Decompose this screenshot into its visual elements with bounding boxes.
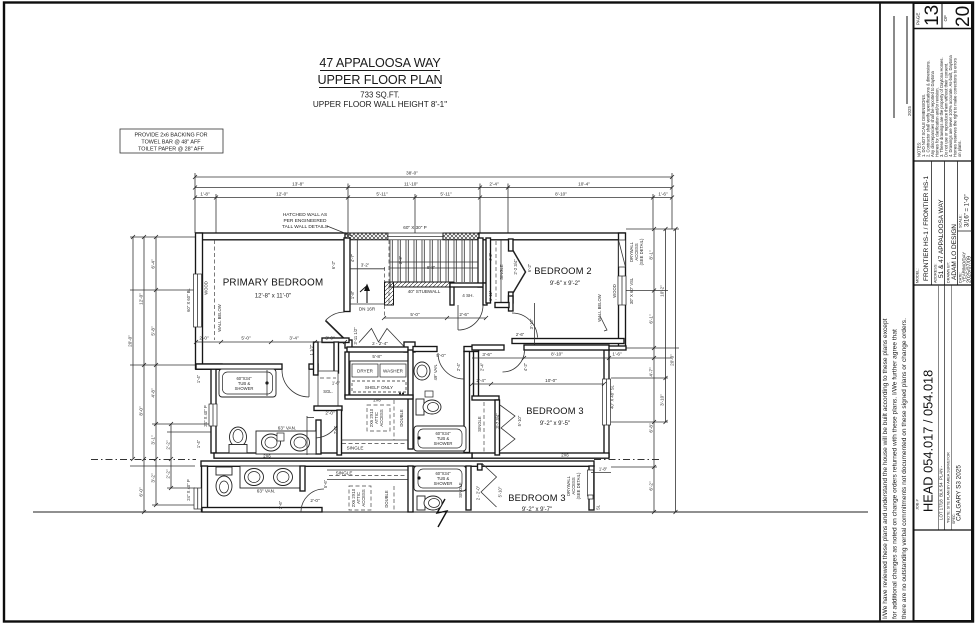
svg-text:8'-10": 8'-10" [551, 352, 563, 357]
svg-text:DRAWN BY:: DRAWN BY: [947, 262, 951, 283]
svg-text:1 1/2": 1 1/2" [309, 344, 314, 355]
svg-text:49" VAN.: 49" VAN. [433, 364, 438, 381]
svg-text:BEDROOM 3: BEDROOM 3 [526, 406, 584, 416]
svg-text:2 - 2'-0": 2 - 2'-0" [476, 485, 481, 500]
svg-text:20'-0": 20'-0" [128, 335, 133, 347]
svg-text:2'-9": 2'-9" [398, 255, 403, 264]
svg-text:SHOWER: SHOWER [434, 481, 453, 486]
svg-text:MODEL:: MODEL: [916, 268, 920, 283]
svg-text:60" X 60" BL: 60" X 60" BL [186, 287, 191, 311]
svg-text:2'-2": 2'-2" [166, 440, 171, 450]
svg-text:20: 20 [953, 6, 974, 27]
svg-text:TOWEL BAR @ 48" AFF: TOWEL BAR @ 48" AFF [141, 140, 201, 146]
svg-text:UPPER FLOOR WALL HEIGHT 8'-1": UPPER FLOOR WALL HEIGHT 8'-1" [313, 100, 447, 109]
svg-text:SINGLE: SINGLE [458, 482, 463, 498]
svg-text:10'-0": 10'-0" [545, 378, 557, 383]
svg-text:6'-8": 6'-8" [649, 423, 654, 433]
svg-text:ADAM LO DESIGN: ADAM LO DESIGN [951, 224, 958, 280]
svg-text:I/We have reviewed these plans: I/We have reviewed these plans and under… [882, 318, 889, 619]
svg-text:733 SQ.FT.: 733 SQ.FT. [360, 91, 399, 100]
svg-text:PROVIDE 2x6 BACKING FOR: PROVIDE 2x6 BACKING FOR [134, 133, 207, 139]
svg-text:BEDROOM 3: BEDROOM 3 [508, 493, 566, 503]
svg-text:2 - 2'-4": 2 - 2'-4" [372, 341, 388, 346]
svg-text:13'-8": 13'-8" [292, 182, 304, 187]
svg-text:6'-2": 6'-2" [527, 263, 532, 272]
svg-text:FRONTIER HS-1 / FRONTIER HS-1: FRONTIER HS-1 / FRONTIER HS-1 [923, 176, 930, 281]
svg-text:4'-7": 4'-7" [350, 253, 355, 262]
svg-text:SINGLE: SINGLE [347, 446, 364, 451]
svg-text:BEDROOM 2: BEDROOM 2 [534, 266, 592, 276]
svg-text:2'-2": 2'-2" [166, 469, 171, 479]
svg-text:2X6: 2X6 [561, 453, 569, 458]
svg-text:3'-4": 3'-4" [289, 336, 299, 341]
svg-text:9'-2" x 9'-5": 9'-2" x 9'-5" [540, 421, 570, 427]
svg-text:SL: SL [596, 504, 601, 510]
svg-text:WASHER: WASHER [383, 369, 404, 374]
svg-text:LOT 17/18 BLK 54 PLAN -: LOT 17/18 BLK 54 PLAN - [939, 465, 944, 520]
svg-text:UPPER FLOOR PLAN: UPPER FLOOR PLAN [317, 73, 442, 87]
svg-text:6'-2": 6'-2" [331, 260, 336, 269]
svg-text:3'-10": 3'-10" [529, 318, 534, 329]
svg-text:40" STUBWALL: 40" STUBWALL [408, 289, 441, 294]
svg-text:11'-10": 11'-10" [404, 182, 418, 187]
svg-text:3'-7 3/4": 3'-7 3/4" [495, 413, 500, 429]
svg-text:12'-0": 12'-0" [276, 192, 288, 197]
svg-text:5'-10": 5'-10" [517, 415, 522, 426]
svg-text:63" VAN.: 63" VAN. [278, 426, 296, 431]
svg-text:20'-0": 20'-0" [670, 354, 675, 366]
svg-text:1'-6": 1'-6" [332, 381, 341, 386]
svg-text:30" X 60" VSL: 30" X 60" VSL [629, 277, 634, 304]
svg-text:(SEE DETAIL): (SEE DETAIL) [576, 472, 581, 499]
svg-text:3'-1": 3'-1" [151, 435, 156, 445]
svg-text:12'-0": 12'-0" [139, 293, 144, 305]
svg-text:9'-2" x 9'-7": 9'-2" x 9'-7" [522, 507, 552, 513]
svg-text:8'-0": 8'-0" [139, 406, 144, 416]
svg-text:2X6: 2X6 [263, 454, 271, 459]
svg-text:5'-0": 5'-0" [436, 353, 446, 358]
svg-text:8'-8": 8'-8" [427, 265, 436, 270]
svg-text:SINGLE: SINGLE [499, 264, 504, 280]
svg-text:10'-2": 10'-2" [660, 285, 665, 297]
svg-text:5'-11": 5'-11" [440, 192, 452, 197]
svg-text:*NOTE: SITE PLAN BY AREA SURVE: *NOTE: SITE PLAN BY AREA SURVEYOR [947, 452, 951, 523]
svg-text:40" X 48" SL: 40" X 48" SL [610, 384, 615, 408]
svg-text:13: 13 [922, 5, 943, 26]
svg-text:1'-4": 1'-4" [196, 439, 201, 448]
svg-text:2'-6": 2'-6" [516, 332, 525, 337]
svg-text:4'-7": 4'-7" [649, 367, 654, 377]
svg-text:ADDRESS:: ADDRESS: [934, 264, 938, 283]
svg-text:2'-0": 2'-0" [310, 498, 320, 503]
svg-text:1'-6": 1'-6" [612, 352, 622, 357]
svg-text:2025/07/09: 2025/07/09 [967, 256, 973, 283]
svg-text:2'-0": 2'-0" [325, 411, 335, 416]
svg-text:WOOD: WOOD [204, 281, 209, 295]
svg-text:SHOWER: SHOWER [434, 441, 453, 446]
svg-text:DOUBLE: DOUBLE [399, 409, 404, 426]
svg-text:DRYER: DRYER [357, 369, 374, 374]
svg-text:for additional changes as note: for additional changes as noted on chang… [892, 329, 899, 619]
svg-text:6'-2": 6'-2" [649, 481, 654, 491]
svg-text:PER ENGINEERED: PER ENGINEERED [284, 218, 327, 224]
svg-text:1'-8": 1'-8" [200, 192, 210, 197]
svg-text:2'-6": 2'-6" [459, 312, 469, 317]
svg-text:3'-10": 3'-10" [660, 394, 665, 406]
svg-text:2'-6": 2'-6" [333, 425, 338, 434]
svg-text:SHELF ONLY: SHELF ONLY [365, 385, 393, 390]
svg-text:38'-0": 38'-0" [406, 171, 418, 176]
svg-text:3/16" = 1'-0": 3/16" = 1'-0" [965, 194, 971, 227]
svg-text:5'-6": 5'-6" [323, 479, 328, 488]
svg-text:PRIMARY BEDROOM: PRIMARY BEDROOM [223, 278, 324, 289]
svg-text:CALGARY S3 2025: CALGARY S3 2025 [956, 465, 963, 521]
svg-text:2'-0": 2'-0" [199, 336, 209, 341]
svg-text:on plans.: on plans. [957, 140, 962, 157]
svg-text:3'-6": 3'-6" [482, 352, 492, 357]
svg-text:4 SH.: 4 SH. [462, 293, 474, 298]
svg-text:4'-2": 4'-2" [523, 362, 528, 371]
svg-text:DOUBLE: DOUBLE [384, 490, 389, 507]
svg-text:1'-4": 1'-4" [196, 374, 201, 383]
svg-text:ACCESS: ACCESS [379, 409, 384, 426]
svg-text:24" X 40" P: 24" X 40" P [186, 479, 191, 501]
svg-text:5'-11": 5'-11" [376, 192, 388, 197]
svg-text:2'-4": 2'-4" [476, 378, 486, 383]
svg-text:3'-11 1/2": 3'-11 1/2" [353, 327, 358, 345]
svg-text:SINGLE: SINGLE [336, 471, 353, 476]
svg-text:6'-0": 6'-0" [139, 487, 144, 497]
svg-text:WALL BELOW: WALL BELOW [597, 294, 602, 321]
svg-text:4'-2": 4'-2" [488, 252, 493, 261]
svg-text:HATCHED WALL AS: HATCHED WALL AS [283, 212, 327, 218]
svg-text:2'-4": 2'-4" [456, 362, 461, 371]
svg-text:1'-11": 1'-11" [488, 290, 493, 301]
svg-text:5'-10": 5'-10" [498, 486, 503, 497]
svg-text:8'-10": 8'-10" [555, 192, 567, 197]
svg-text:WOOD: WOOD [612, 284, 617, 298]
svg-text:SINGLE: SINGLE [477, 416, 482, 432]
svg-text:OF: OF [943, 15, 948, 22]
svg-text:SHOWER: SHOWER [235, 386, 254, 391]
svg-text:WALL BELOW: WALL BELOW [217, 304, 222, 331]
svg-text:there are no outstanding verba: there are no outstanding verbal commitme… [901, 318, 908, 619]
svg-text:47 APPALOOSA WAY: 47 APPALOOSA WAY [319, 56, 441, 70]
svg-text:5'-8": 5'-8" [372, 354, 382, 359]
svg-text:12'-8" x 11'-0": 12'-8" x 11'-0" [255, 294, 291, 300]
svg-text:JOB #: JOB # [916, 499, 920, 510]
svg-text:5'-0": 5'-0" [410, 312, 420, 317]
svg-text:3'-0": 3'-0" [325, 336, 335, 341]
svg-text:TOILET PAPER @ 28" AFF: TOILET PAPER @ 28" AFF [138, 147, 205, 153]
svg-text:HEAD 054.017 / 054.018: HEAD 054.017 / 054.018 [921, 370, 936, 512]
svg-text:9'-6" x 9'-2": 9'-6" x 9'-2" [550, 281, 580, 287]
svg-text:63" VAN.: 63" VAN. [257, 489, 275, 494]
svg-text:8'-1": 8'-1" [649, 250, 654, 260]
svg-text:3'-2": 3'-2" [151, 473, 156, 483]
svg-text:(SEE DETAIL): (SEE DETAIL) [639, 238, 644, 265]
svg-text:51 & 47 APPALOOSA WAY: 51 & 47 APPALOOSA WAY [938, 199, 945, 278]
svg-text:1'-8": 1'-8" [599, 467, 608, 472]
svg-text:60" X 30" P: 60" X 30" P [403, 225, 426, 230]
svg-text:3'-2": 3'-2" [361, 263, 370, 268]
svg-text:6'-1": 6'-1" [649, 314, 654, 324]
svg-text:2'-4": 2'-4" [489, 182, 499, 187]
svg-text:24" X 40" P: 24" X 40" P [203, 405, 208, 427]
svg-text:SCALE:: SCALE: [959, 214, 963, 228]
svg-text:DN 16R: DN 16R [359, 307, 376, 312]
svg-text:2'-4": 2'-4" [480, 362, 485, 371]
svg-text:PAGE: PAGE [916, 13, 921, 25]
svg-text:6'-4": 6'-4" [151, 259, 156, 269]
svg-text:TALL WALL DETAILS: TALL WALL DETAILS [282, 224, 328, 230]
svg-text:2'-6": 2'-6" [278, 500, 283, 509]
svg-text:ACCESS: ACCESS [361, 489, 366, 506]
svg-text:1'-8": 1'-8" [350, 290, 355, 299]
svg-text:4'-8": 4'-8" [151, 388, 156, 398]
svg-text:10'-4": 10'-4" [578, 182, 590, 187]
svg-text:2X6: 2X6 [373, 398, 381, 403]
svg-text:5'-8": 5'-8" [151, 326, 156, 336]
svg-text:2'-2 3/4": 2'-2 3/4" [513, 259, 518, 275]
svg-text:1'-6": 1'-6" [658, 192, 668, 197]
svg-text:SGL.: SGL. [323, 389, 333, 394]
svg-text:2025: 2025 [907, 105, 912, 116]
svg-text:5'-0": 5'-0" [241, 336, 251, 341]
